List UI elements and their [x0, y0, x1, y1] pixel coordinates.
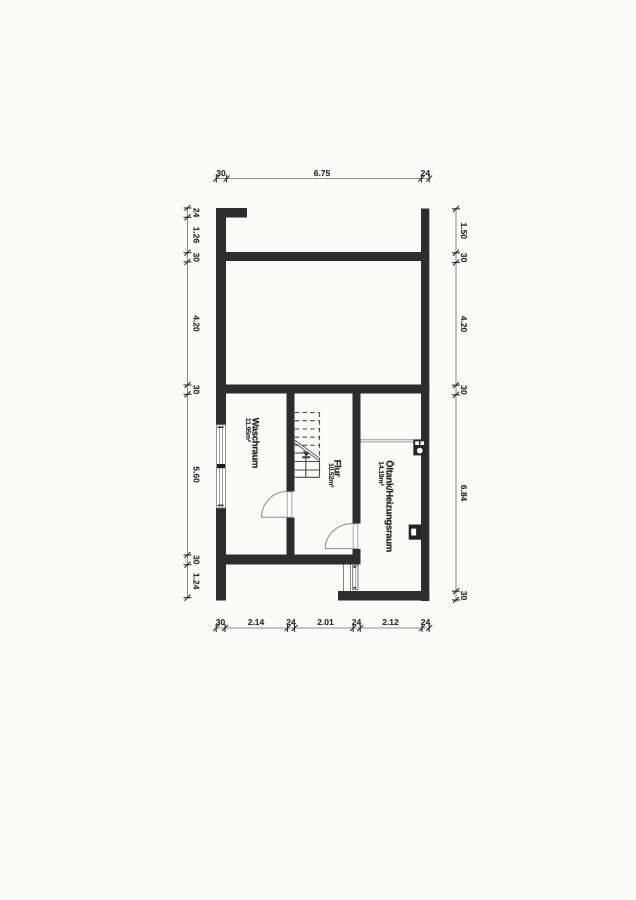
svg-text:5.60: 5.60: [192, 466, 202, 483]
svg-text:24: 24: [421, 168, 431, 178]
svg-text:30: 30: [459, 385, 469, 395]
svg-text:6.84: 6.84: [459, 485, 469, 502]
svg-text:24: 24: [352, 617, 362, 627]
svg-text:14.19m²: 14.19m²: [377, 461, 384, 486]
svg-text:30: 30: [192, 385, 202, 395]
svg-text:Öltank/Heizungsraum: Öltank/Heizungsraum: [385, 460, 396, 552]
svg-text:24: 24: [192, 208, 202, 218]
svg-text:30: 30: [216, 168, 226, 178]
svg-text:1.26: 1.26: [192, 227, 202, 244]
svg-text:11.95m²: 11.95m²: [244, 418, 251, 443]
svg-text:4.20: 4.20: [459, 316, 469, 333]
svg-text:1.50: 1.50: [459, 223, 469, 240]
svg-text:24: 24: [421, 617, 431, 627]
svg-text:30: 30: [216, 617, 226, 627]
svg-text:4.20: 4.20: [192, 315, 202, 332]
svg-text:6.75: 6.75: [314, 168, 331, 178]
svg-text:30: 30: [192, 253, 202, 263]
svg-text:30: 30: [192, 555, 202, 565]
svg-text:2.14: 2.14: [248, 617, 265, 627]
svg-text:10.52m²: 10.52m²: [327, 463, 334, 488]
svg-text:2.01: 2.01: [317, 617, 334, 627]
svg-text:30: 30: [459, 253, 469, 263]
svg-text:30: 30: [459, 591, 469, 601]
svg-text:24: 24: [286, 617, 296, 627]
svg-text:Waschraum: Waschraum: [251, 418, 262, 469]
svg-text:2.12: 2.12: [382, 617, 399, 627]
svg-text:1.24: 1.24: [192, 573, 202, 590]
